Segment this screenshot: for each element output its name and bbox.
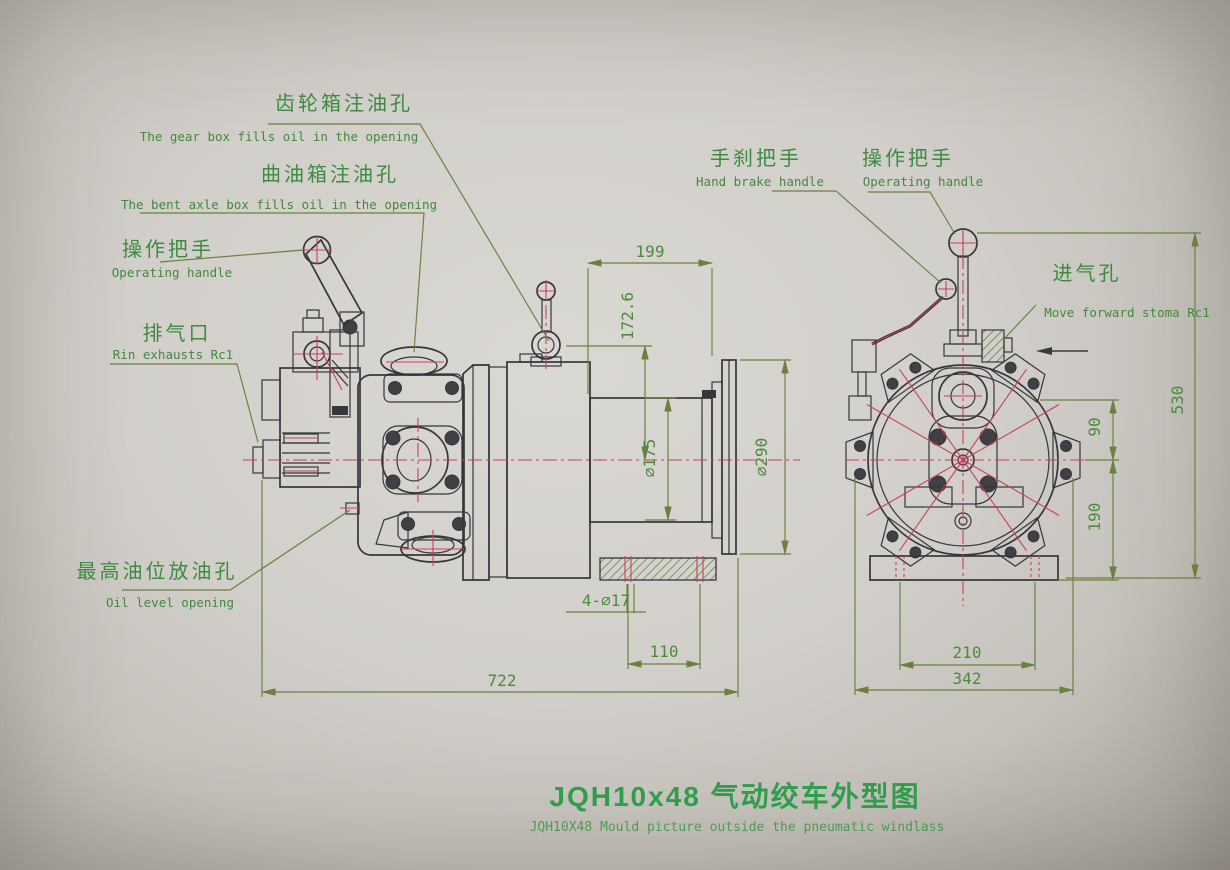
flange-bolt: [386, 475, 400, 489]
valve-plug-top: [307, 310, 319, 318]
label-gear-box-oil-zh: 齿轮箱注油孔: [275, 92, 413, 115]
label-gear-box-oil-en: The gear box fills oil in the opening: [140, 129, 418, 144]
air-motor: [253, 368, 360, 487]
ball-crosshairs: [303, 236, 555, 300]
label-operating-handle-r-zh: 操作把手: [862, 147, 954, 170]
hub-bolt: [980, 476, 996, 492]
flange-bolt: [445, 431, 459, 445]
label-operating-handle-r-en: Operating handle: [863, 174, 983, 189]
control-valve: [293, 237, 364, 418]
valve-plug: [303, 318, 323, 332]
label-operating-handle-l-zh: 操作把手: [122, 238, 214, 261]
brake-rod-centerline: [872, 297, 943, 344]
drawing-sheet: 齿轮箱注油孔 The gear box fills oil in the ope…: [0, 0, 1230, 870]
drawing-title: JQH10x48 气动绞车外型图: [549, 780, 920, 812]
side-view-centerlines: [243, 236, 800, 582]
valve-slide-seat: [332, 406, 348, 415]
foot-bracket: [600, 558, 716, 580]
winch-drawing: 齿轮箱注油孔 The gear box fills oil in the ope…: [0, 0, 1230, 870]
dim-text-530: 530: [1168, 386, 1187, 415]
rope-direction-arrow: [1036, 347, 1088, 355]
leader-gear-box-oil: [268, 124, 549, 341]
front-view-centerlines: [845, 229, 1085, 606]
drum-support-plate: [463, 365, 489, 580]
dim-text-172-6: 172.6: [618, 292, 637, 340]
dim-text-210: 210: [953, 643, 982, 662]
cap-bolt: [446, 382, 459, 395]
stud-marks: [284, 352, 360, 508]
label-crank-box-oil-zh: 曲油箱注油孔: [261, 163, 399, 186]
base-bolt-holes: [896, 556, 1039, 580]
front-view-dimensions: [855, 233, 1201, 695]
barrel-key: [702, 390, 716, 398]
bottom-skirt: [376, 512, 408, 548]
dim-text-110: 110: [650, 642, 679, 661]
label-oil-level-en: Oil level opening: [106, 595, 234, 610]
ext-199: [588, 268, 712, 394]
label-operating-handle-l-en: Operating handle: [112, 265, 232, 280]
ext-342: [855, 478, 1073, 695]
leader-operating-handle-r: [868, 192, 955, 234]
front-valve-assembly: [849, 229, 1012, 420]
brake-handle-rod: [872, 297, 943, 344]
drum-housing: [507, 362, 590, 578]
dim-text-90: 90: [1085, 417, 1104, 436]
base-plate: [870, 556, 1058, 580]
leader-air-inlet: [1003, 305, 1036, 340]
drum-assembly: [463, 282, 736, 580]
label-air-inlet-zh: 进气孔: [1053, 262, 1122, 285]
dim-text-4-17: 4-⌀17: [582, 591, 630, 610]
motor-left-box: [262, 380, 280, 420]
brake-link-rod: [858, 372, 866, 396]
front-crosshairs: [938, 229, 982, 396]
label-oil-level-zh: 最高油位放油孔: [77, 560, 238, 583]
air-inlet-fitting: [982, 330, 1004, 362]
side-view: [243, 236, 800, 697]
label-exhaust-zh: 排气口: [143, 322, 212, 345]
callout-leaders: [110, 124, 1036, 590]
hub-bolt: [930, 476, 946, 492]
drum-support-2: [489, 367, 507, 577]
top-bearing-cap-inner: [391, 357, 437, 375]
dim-text-342: 342: [953, 669, 982, 688]
brake-link-block2: [849, 396, 871, 420]
exhaust-stub: [263, 440, 280, 478]
flange-bolt: [445, 475, 459, 489]
gear-box: [346, 347, 470, 562]
text-layer: 齿轮箱注油孔 The gear box fills oil in the ope…: [77, 92, 1210, 835]
label-hand-brake-en: Hand brake handle: [696, 174, 824, 189]
valve-centerlines: [293, 336, 343, 380]
dim-text-175: ⌀175: [640, 439, 659, 478]
front-view: [845, 229, 1201, 695]
dim-text-190: 190: [1085, 503, 1104, 532]
dim-text-290: ⌀290: [752, 438, 771, 477]
cap-bolt: [389, 382, 402, 395]
handle-pivot-pin: [343, 320, 357, 334]
label-exhaust-en: Rin exhausts Rc1: [113, 347, 233, 362]
drawing-subtitle: JQH10X48 Mould picture outside the pneum…: [530, 820, 945, 835]
cap-bolt: [402, 518, 415, 531]
flange-bolt: [386, 431, 400, 445]
label-air-inlet-en: Move forward stoma Rc1: [1044, 305, 1210, 320]
leader-exhaust: [110, 364, 258, 442]
dim-text-722: 722: [488, 671, 517, 690]
valve-hatch: [332, 360, 348, 386]
leader-hand-brake: [772, 191, 941, 283]
air-inlet-nipple: [1004, 338, 1012, 352]
label-crank-box-oil-en: The bent axle box fills oil in the openi…: [121, 197, 437, 212]
valve-block: [293, 332, 358, 372]
dim-text-199: 199: [636, 242, 665, 261]
label-hand-brake-zh: 手刹把手: [710, 147, 802, 170]
